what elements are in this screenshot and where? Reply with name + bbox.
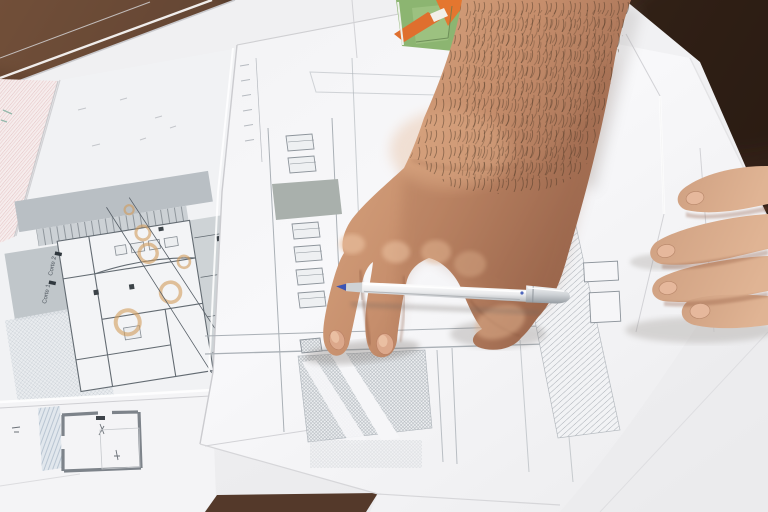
photo-canvas: Corte 2 Corte 1 xyxy=(0,0,768,512)
wood-gap-bottom xyxy=(205,493,378,512)
photo-architect-blueprints: Corte 2 Corte 1 xyxy=(0,0,768,512)
lower-left-sheet xyxy=(0,390,216,512)
elevation-gray-block xyxy=(272,179,342,220)
elevation-ground-hatch xyxy=(298,350,432,468)
